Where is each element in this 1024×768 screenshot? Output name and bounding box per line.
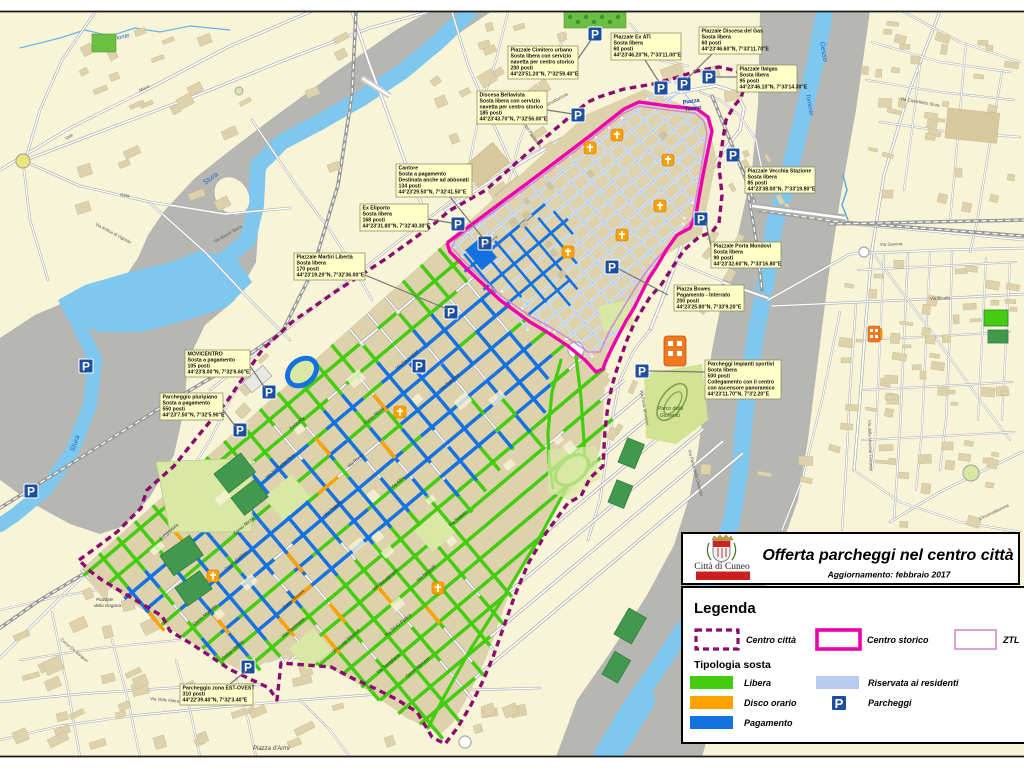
svg-text:44°23'29.50"N, 7°32'41.50"E: 44°23'29.50"N, 7°32'41.50"E: [399, 190, 467, 196]
svg-text:della Dogana: della Dogana: [94, 603, 122, 608]
svg-text:Pagamento: Pagamento: [744, 718, 793, 728]
svg-text:P: P: [608, 261, 616, 275]
svg-text:Offerta parcheggi nel centro c: Offerta parcheggi nel centro città: [762, 547, 1013, 564]
svg-text:Centro città: Centro città: [746, 635, 796, 645]
svg-text:44°23'51.20"N, 7°32'59.40"E: 44°23'51.20"N, 7°32'59.40"E: [511, 72, 579, 78]
svg-text:44°23'19.20"N, 7°32'36.00"E: 44°23'19.20"N, 7°32'36.00"E: [297, 273, 365, 279]
svg-text:44°23'46.10"N, 7°33'14.30"E: 44°23'46.10"N, 7°33'14.30"E: [740, 85, 808, 91]
svg-text:44°23'32.60"N, 7°33'16.80"E: 44°23'32.60"N, 7°33'16.80"E: [714, 262, 782, 268]
svg-text:Centro storico: Centro storico: [867, 635, 929, 645]
svg-text:44°22'39.40"N, 7°32'3.40"E: 44°22'39.40"N, 7°32'3.40"E: [183, 698, 248, 704]
svg-text:44°23'8.00"N, 7°32'6.60"E: 44°23'8.00"N, 7°32'6.60"E: [188, 370, 251, 376]
svg-text:44°23'7.50"N, 7°32'5.90"E: 44°23'7.50"N, 7°32'5.90"E: [163, 413, 226, 419]
svg-text:P: P: [638, 365, 646, 379]
svg-text:P: P: [697, 213, 705, 227]
svg-text:Disco orario: Disco orario: [744, 698, 797, 708]
svg-text:Legenda: Legenda: [694, 600, 756, 617]
svg-text:P: P: [27, 485, 35, 499]
svg-text:Tipologia sosta: Tipologia sosta: [694, 659, 771, 671]
svg-text:44°23'11.70"N, 7°3'2.20"E: 44°23'11.70"N, 7°3'2.20"E: [708, 392, 770, 398]
svg-text:Via Bisalta: Via Bisalta: [930, 295, 951, 301]
svg-text:P: P: [265, 386, 273, 400]
svg-text:44°23'46.60"N, 7°33'11.70"E: 44°23'46.60"N, 7°33'11.70"E: [702, 47, 770, 53]
svg-text:P: P: [415, 360, 423, 374]
svg-text:Piazzale: Piazzale: [96, 597, 114, 602]
svg-text:44°23'46.20"N, 7°33'11.00"E: 44°23'46.20"N, 7°33'11.00"E: [614, 53, 682, 59]
svg-text:P: P: [447, 306, 455, 320]
svg-text:Parcheggi: Parcheggi: [868, 698, 912, 708]
svg-text:P: P: [236, 424, 244, 438]
svg-text:P: P: [729, 149, 737, 163]
svg-text:P: P: [680, 78, 688, 92]
svg-text:P: P: [835, 696, 844, 711]
svg-text:P: P: [657, 82, 665, 96]
svg-text:P: P: [705, 71, 713, 85]
svg-text:ZTL: ZTL: [1002, 635, 1020, 645]
svg-text:Libera: Libera: [744, 678, 771, 688]
svg-text:44°23'38.00"N, 7°33'19.80"E: 44°23'38.00"N, 7°33'19.80"E: [748, 187, 816, 193]
svg-text:44°23'25.80"N, 7°33'9.20"E: 44°23'25.80"N, 7°33'9.20"E: [677, 305, 742, 311]
svg-text:44°23'43.70"N, 7°32'56.00"E: 44°23'43.70"N, 7°32'56.00"E: [480, 117, 548, 123]
svg-text:44°23'31.80"N, 7°32'40.30"E: 44°23'31.80"N, 7°32'40.30"E: [363, 224, 431, 230]
svg-text:Via Savona: Via Savona: [880, 241, 903, 247]
svg-text:Parco della: Parco della: [658, 406, 683, 412]
svg-text:Gioventù: Gioventù: [660, 413, 680, 419]
svg-text:Città di Cuneo: Città di Cuneo: [694, 562, 750, 572]
svg-text:Riservata ai residenti: Riservata ai residenti: [868, 678, 959, 688]
svg-text:Aggiornamento: febbraio 2017: Aggiornamento: febbraio 2017: [827, 570, 952, 580]
svg-text:Piazza d'Armi: Piazza d'Armi: [253, 746, 290, 752]
svg-text:P: P: [454, 218, 462, 232]
svg-text:P: P: [574, 109, 582, 123]
svg-text:P: P: [82, 360, 90, 374]
svg-text:P: P: [591, 28, 599, 42]
